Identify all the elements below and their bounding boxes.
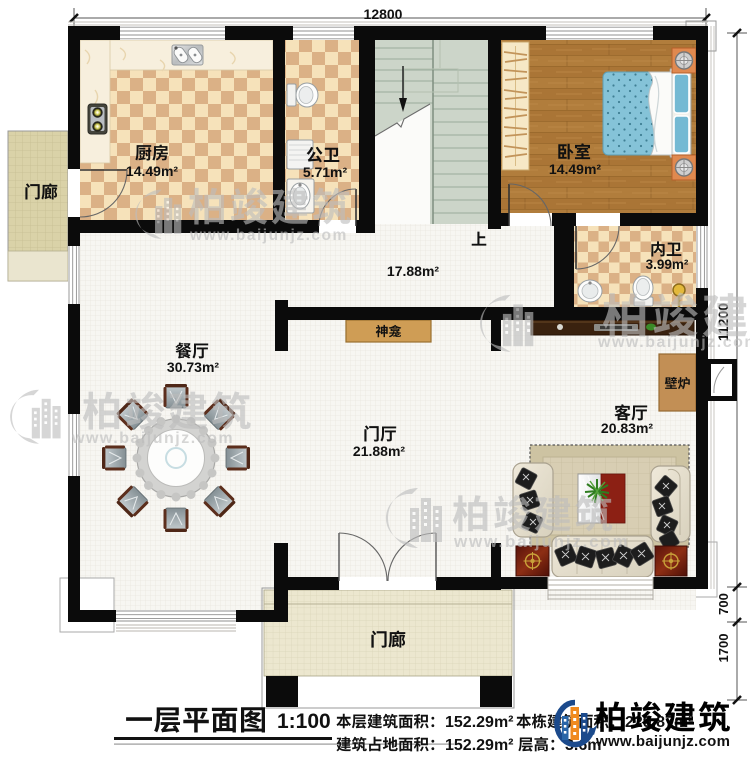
svg-text:12800: 12800 [364,6,403,22]
svg-text:21.88m²: 21.88m² [353,443,405,459]
svg-text:3.99m²: 3.99m² [646,257,689,272]
svg-text:www.baijunjz.com: www.baijunjz.com [71,430,234,447]
svg-text:700: 700 [716,593,731,615]
svg-text:www.baijunjz.com: www.baijunjz.com [595,733,730,750]
svg-text:www.baijunjz.com: www.baijunjz.com [597,334,750,351]
svg-text:152.29m²: 152.29m² [445,737,514,754]
svg-text:1:100: 1:100 [277,710,331,733]
svg-text:152.29m²: 152.29m² [445,714,514,731]
svg-text:20.83m²: 20.83m² [601,420,653,436]
svg-text:14.49m²: 14.49m² [549,161,601,177]
svg-text:1700: 1700 [716,634,731,663]
svg-text:14.49m²: 14.49m² [126,163,178,179]
svg-text:17.88m²: 17.88m² [387,263,439,279]
svg-text:www.baijunjz.com: www.baijunjz.com [189,227,348,244]
svg-text:5.71m²: 5.71m² [303,164,348,180]
svg-text:30.73m²: 30.73m² [167,359,219,375]
svg-text:www.baijunjz.com: www.baijunjz.com [453,532,630,551]
